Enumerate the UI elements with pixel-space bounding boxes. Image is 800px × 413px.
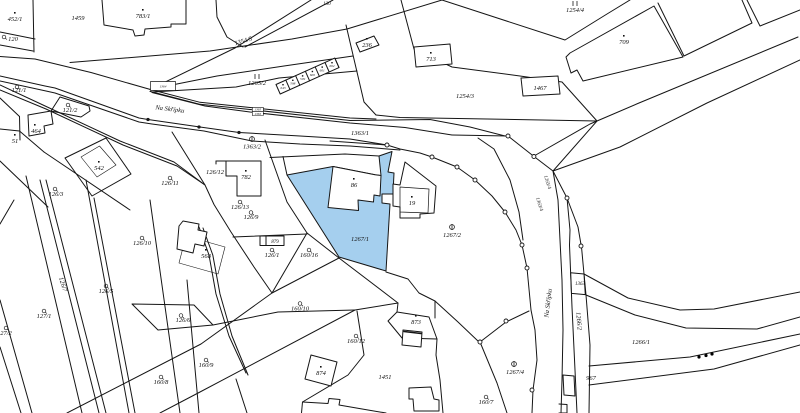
svg-text:126/12: 126/12 bbox=[206, 169, 225, 176]
svg-text:27/2: 27/2 bbox=[0, 330, 12, 337]
svg-text:160/16: 160/16 bbox=[300, 252, 319, 259]
svg-text:160/12: 160/12 bbox=[347, 338, 366, 345]
svg-text:121/2: 121/2 bbox=[63, 107, 79, 114]
svg-text:126/9: 126/9 bbox=[244, 214, 260, 221]
svg-text:782: 782 bbox=[241, 174, 252, 181]
svg-text:160/10: 160/10 bbox=[291, 306, 310, 313]
svg-text:236: 236 bbox=[362, 42, 373, 49]
svg-text:1266/1: 1266/1 bbox=[632, 339, 650, 346]
svg-text:160/9: 160/9 bbox=[199, 362, 215, 369]
svg-text:601: 601 bbox=[320, 68, 325, 72]
svg-text:127/1: 127/1 bbox=[37, 313, 52, 320]
svg-text:1254/4: 1254/4 bbox=[566, 7, 585, 14]
svg-text:599: 599 bbox=[300, 77, 305, 81]
svg-text:600: 600 bbox=[310, 73, 315, 77]
svg-text:709: 709 bbox=[619, 39, 630, 46]
svg-text:1267/1: 1267/1 bbox=[351, 236, 369, 243]
svg-text:873: 873 bbox=[411, 319, 422, 326]
svg-text:126/13: 126/13 bbox=[231, 204, 250, 211]
svg-text:1363/1: 1363/1 bbox=[351, 130, 369, 137]
svg-text:51: 51 bbox=[12, 138, 19, 145]
svg-text:1451: 1451 bbox=[379, 374, 392, 381]
svg-text:1265/2: 1265/2 bbox=[248, 80, 267, 87]
svg-text:643: 643 bbox=[280, 86, 285, 90]
svg-text:452/1: 452/1 bbox=[8, 16, 23, 23]
svg-text:1364: 1364 bbox=[160, 84, 167, 88]
svg-text:126/1: 126/1 bbox=[265, 252, 280, 259]
svg-text:874: 874 bbox=[316, 370, 327, 377]
svg-text:879: 879 bbox=[271, 240, 279, 245]
svg-text:1363: 1363 bbox=[575, 282, 586, 287]
svg-text:1267/4: 1267/4 bbox=[506, 369, 525, 376]
svg-text:542: 542 bbox=[94, 165, 105, 172]
svg-text:568: 568 bbox=[201, 253, 212, 260]
svg-text:126/5: 126/5 bbox=[99, 288, 115, 295]
svg-text:967: 967 bbox=[586, 375, 597, 382]
svg-text:598: 598 bbox=[290, 82, 295, 86]
svg-text:1467: 1467 bbox=[534, 85, 548, 92]
svg-text:1459: 1459 bbox=[72, 15, 86, 22]
svg-text:121/1: 121/1 bbox=[12, 87, 27, 94]
svg-text:126/11: 126/11 bbox=[161, 180, 179, 187]
svg-text:1267/2: 1267/2 bbox=[443, 232, 462, 239]
svg-text:126/10: 126/10 bbox=[133, 240, 152, 247]
svg-text:130: 130 bbox=[323, 2, 331, 7]
svg-text:19: 19 bbox=[409, 200, 416, 207]
svg-text:120: 120 bbox=[8, 36, 19, 43]
svg-text:1254/3: 1254/3 bbox=[456, 93, 475, 100]
svg-text:126/3: 126/3 bbox=[49, 191, 65, 198]
svg-text:713: 713 bbox=[426, 56, 437, 63]
svg-text:602: 602 bbox=[329, 64, 334, 68]
svg-text:160/8: 160/8 bbox=[154, 379, 170, 386]
svg-text:160/7: 160/7 bbox=[479, 399, 495, 406]
svg-text:464: 464 bbox=[31, 128, 42, 135]
svg-text:86: 86 bbox=[351, 182, 358, 189]
svg-text:783/1: 783/1 bbox=[136, 13, 151, 20]
svg-text:1363/2: 1363/2 bbox=[243, 144, 262, 151]
svg-text:1365: 1365 bbox=[254, 112, 261, 116]
svg-text:126/6: 126/6 bbox=[176, 317, 192, 324]
